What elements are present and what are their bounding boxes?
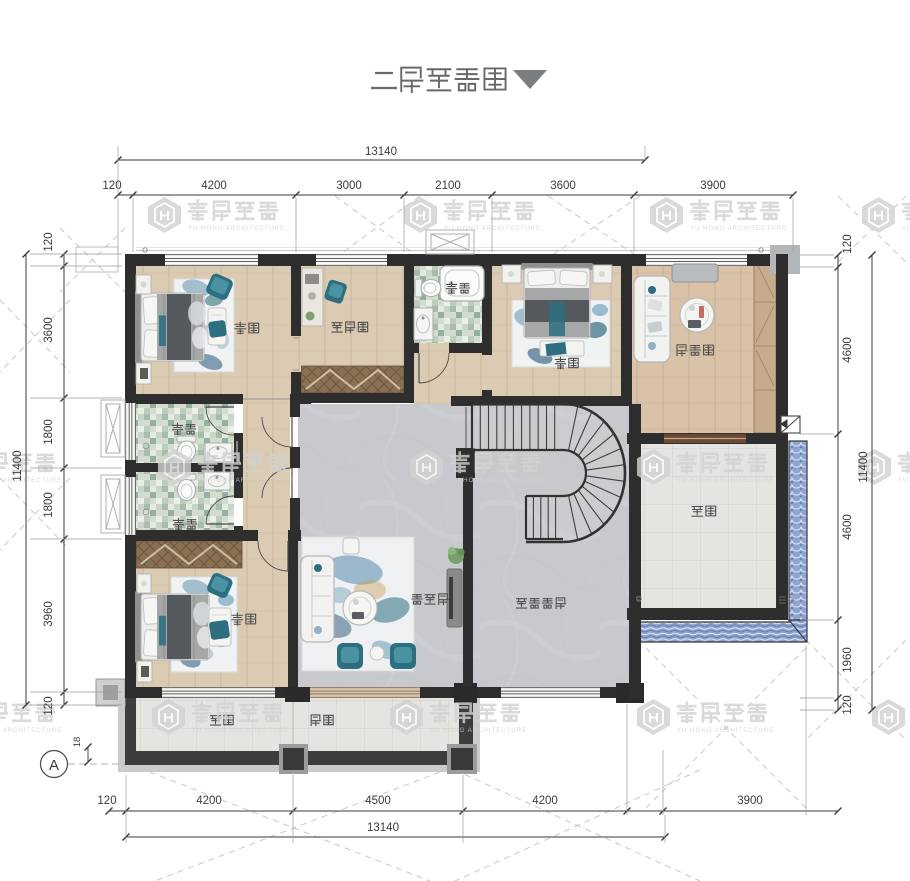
svg-text:3600: 3600 — [550, 180, 576, 192]
svg-text:4200: 4200 — [201, 180, 227, 192]
svg-text:11400: 11400 — [858, 451, 870, 482]
svg-text:YU HONG ARCHITECTURE: YU HONG ARCHITECTURE — [430, 727, 527, 734]
svg-text:4200: 4200 — [532, 795, 558, 807]
svg-text:4600: 4600 — [842, 514, 854, 540]
svg-text:11400: 11400 — [12, 450, 24, 481]
svg-text:120: 120 — [97, 795, 116, 807]
svg-text:13140: 13140 — [365, 146, 397, 158]
svg-text:3900: 3900 — [700, 180, 726, 192]
svg-text:120: 120 — [43, 232, 55, 251]
svg-text:120: 120 — [43, 696, 55, 715]
svg-text:3960: 3960 — [43, 601, 55, 627]
svg-text:YU HONG ARCHITECTURE: YU HONG ARCHITECTURE — [192, 727, 289, 734]
svg-text:YU HONG ARCHITECTURE: YU HONG ARCHITECTURE — [188, 225, 285, 232]
svg-text:120: 120 — [102, 180, 121, 192]
svg-text:YU HONG ARCHITECTURE: YU HONG ARCHITECTURE — [677, 727, 774, 734]
svg-text:18: 18 — [72, 737, 83, 748]
svg-text:YU HONG ARCHITECTURE: YU HONG ARCHITECTURE — [690, 225, 787, 232]
svg-text:3600: 3600 — [43, 317, 55, 343]
svg-text:3900: 3900 — [737, 795, 763, 807]
svg-text:YU HONG ARCHITECTURE: YU HONG ARCHITECTURE — [677, 477, 774, 484]
svg-text:1800: 1800 — [43, 419, 55, 445]
svg-text:YU HONG ARCHITECTURE: YU HONG ARCHITECTURE — [444, 225, 541, 232]
svg-text:1800: 1800 — [43, 492, 55, 518]
svg-text:A: A — [49, 757, 59, 774]
svg-text:2100: 2100 — [435, 180, 461, 192]
svg-text:YU HONG ARCHITECTURE: YU HONG ARCHITECTURE — [198, 477, 295, 484]
svg-text:13140: 13140 — [367, 822, 399, 834]
svg-text:YU HONG ARCHITECTURE: YU HONG ARCHITECTURE — [450, 477, 547, 484]
svg-text:120: 120 — [842, 695, 854, 714]
svg-text:YU HONG ARCHITECTURE: YU HONG ARCHITECTURE — [902, 225, 910, 232]
svg-text:4600: 4600 — [842, 337, 854, 363]
svg-text:YU HONG ARCHITECTURE: YU HONG ARCHITECTURE — [898, 477, 910, 484]
svg-text:3000: 3000 — [336, 180, 362, 192]
svg-text:YU HONG ARCHITECTURE: YU HONG ARCHITECTURE — [0, 727, 62, 734]
svg-text:YU HONG ARCHITECTURE: YU HONG ARCHITECTURE — [0, 477, 62, 484]
svg-text:4200: 4200 — [196, 795, 222, 807]
svg-text:1960: 1960 — [842, 647, 854, 673]
svg-text:4500: 4500 — [365, 795, 391, 807]
svg-text:120: 120 — [842, 234, 854, 253]
